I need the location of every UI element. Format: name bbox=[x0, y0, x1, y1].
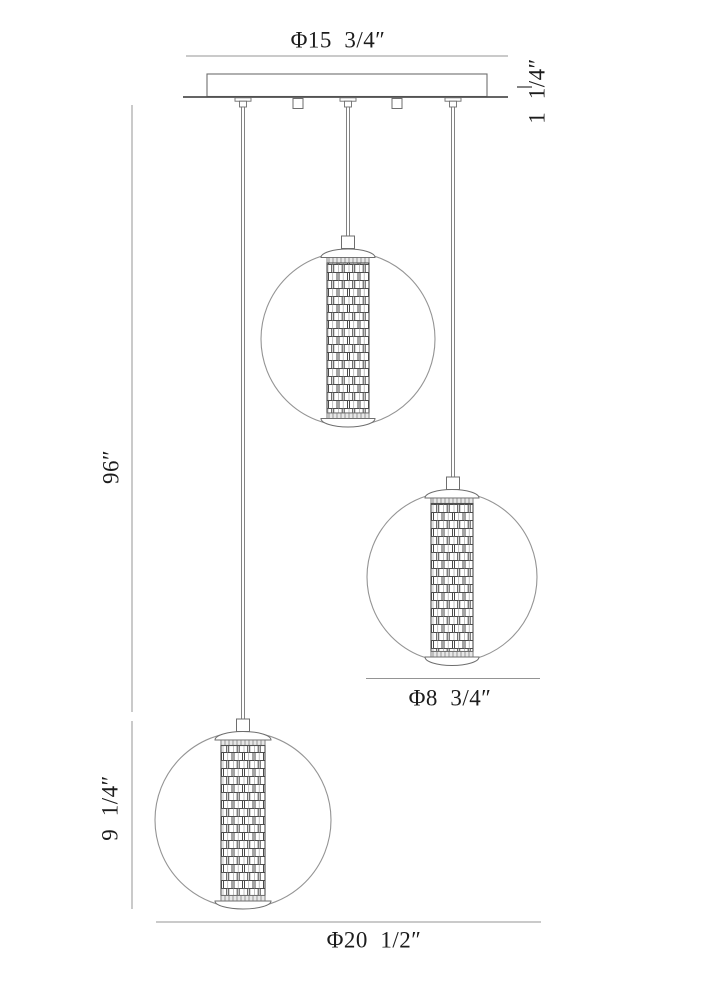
crystal-column-right bbox=[431, 504, 473, 652]
fixture-diameter-label: Φ20 1/2″ bbox=[327, 929, 422, 952]
canopy-screw-hole-left bbox=[293, 99, 303, 109]
top-rim-middle bbox=[327, 258, 369, 264]
lower-globe-drop-label: 9 1/4″ bbox=[99, 775, 122, 840]
cord-grip-stem-left bbox=[240, 101, 247, 107]
bottom-cap-left bbox=[215, 901, 271, 909]
fixture-line-art bbox=[0, 0, 707, 1000]
pendant-fixture-dimension-drawing: Φ15 3/4″ 1 1/4″ 96″ 9 1/4″ Φ8 3/4″ Φ20 1… bbox=[0, 0, 707, 1000]
globe-diameter-label: Φ8 3/4″ bbox=[409, 687, 492, 710]
pendant-left bbox=[155, 719, 331, 909]
socket-connector-right bbox=[447, 477, 460, 490]
canopy-diameter-label: Φ15 3/4″ bbox=[291, 29, 386, 52]
bottom-cap-right bbox=[425, 657, 479, 666]
socket-connector-middle bbox=[342, 236, 355, 249]
crystal-column-left bbox=[221, 746, 265, 896]
cord-grip-stem-right bbox=[450, 101, 457, 107]
bottom-cap-middle bbox=[321, 419, 375, 428]
cord-grip-cap-right bbox=[445, 98, 461, 101]
cord-grip-cap-left bbox=[235, 98, 251, 101]
cord-grip-stem-middle bbox=[345, 101, 352, 107]
top-cap-left bbox=[215, 732, 271, 741]
crystal-column-middle bbox=[327, 263, 369, 413]
cord-left bbox=[242, 107, 245, 719]
socket-connector-left bbox=[237, 719, 250, 732]
top-cap-middle bbox=[321, 249, 375, 258]
top-cap-right bbox=[425, 490, 479, 499]
cord-grip-cap-middle bbox=[340, 98, 356, 101]
pendant-middle bbox=[261, 236, 435, 427]
cord-right bbox=[452, 107, 455, 477]
bottom-rim-left bbox=[221, 896, 265, 902]
top-rim-right bbox=[431, 498, 473, 504]
pendant-right bbox=[367, 477, 537, 666]
canopy-screw-hole-right bbox=[392, 99, 402, 109]
canopy-body bbox=[207, 74, 487, 97]
cord-middle bbox=[347, 107, 350, 236]
canopy-height-label: 1 1/4″ bbox=[526, 58, 549, 123]
bottom-rim-right bbox=[431, 652, 473, 658]
overall-drop-label: 96″ bbox=[100, 450, 123, 484]
cord-grips bbox=[235, 98, 461, 107]
bottom-rim-middle bbox=[327, 413, 369, 419]
top-rim-left bbox=[221, 740, 265, 746]
